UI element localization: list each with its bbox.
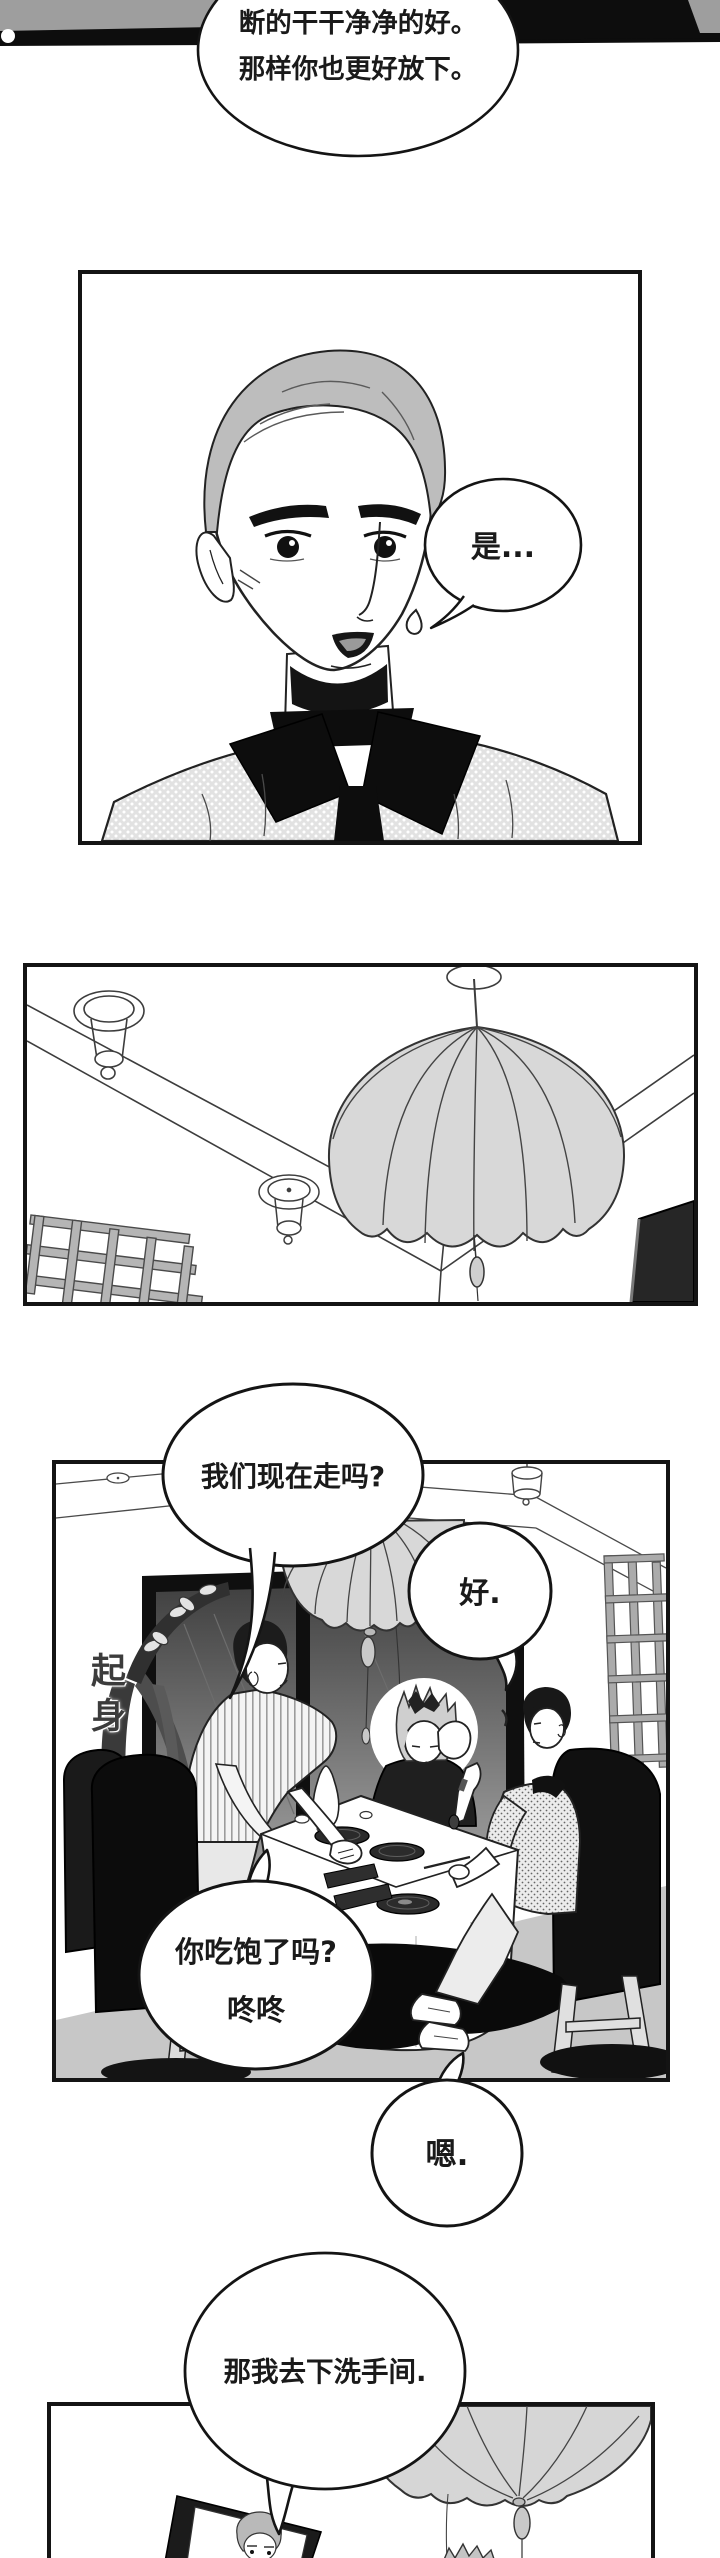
speech-bubble-walk-now: 我们现在走吗? <box>160 1382 426 1712</box>
bubble-shi-text: 是... <box>471 530 535 565</box>
speech-bubble-shi: 是... <box>425 479 581 628</box>
lattice-screen-right <box>604 1554 666 1769</box>
speech-bubble-full-meal: 你吃饱了吗? 咚咚 <box>135 1848 381 2078</box>
speech-bubble-en: 嗯. <box>370 2050 526 2230</box>
restroom-text: 那我去下洗手间. <box>224 2356 427 2388</box>
speech-bubble-restroom: 那我去下洗手间. <box>182 2250 470 2542</box>
full-meal-line2: 咚咚 <box>227 1993 286 2027</box>
panel-portrait: 是... <box>78 270 642 845</box>
highlight-dot <box>1 29 15 43</box>
speech-bubble-hao: 好. <box>406 1520 556 1696</box>
lantern <box>329 967 624 1301</box>
hanging-lamp <box>512 1464 542 1505</box>
ceiling-lamp-small-2 <box>259 1175 319 1244</box>
narration-line2: 那样你也更好放下。 <box>239 54 478 85</box>
portrait-art: 是... <box>82 274 638 841</box>
sweat-drop <box>407 610 422 634</box>
panel-ceiling <box>23 963 698 1306</box>
tv-screen <box>631 1201 694 1302</box>
comic-page: 是... <box>0 0 720 2558</box>
narration-line1: 断的干干净净的好。 <box>239 8 478 39</box>
speech-bubble-narration: 断的干干净净的好。 那样你也更好放下。 <box>195 0 521 162</box>
hao-text: 好. <box>458 1576 500 1611</box>
ceiling-art <box>27 967 694 1302</box>
sfx-stand-up: 起身 <box>80 1652 131 1742</box>
full-meal-line1: 你吃饱了吗? <box>174 1935 337 1969</box>
walk-now-text: 我们现在走吗? <box>201 1460 385 1493</box>
spiky-hair-head <box>443 2544 495 2558</box>
lattice-screen <box>27 1215 210 1302</box>
en-text: 嗯. <box>426 2137 469 2173</box>
